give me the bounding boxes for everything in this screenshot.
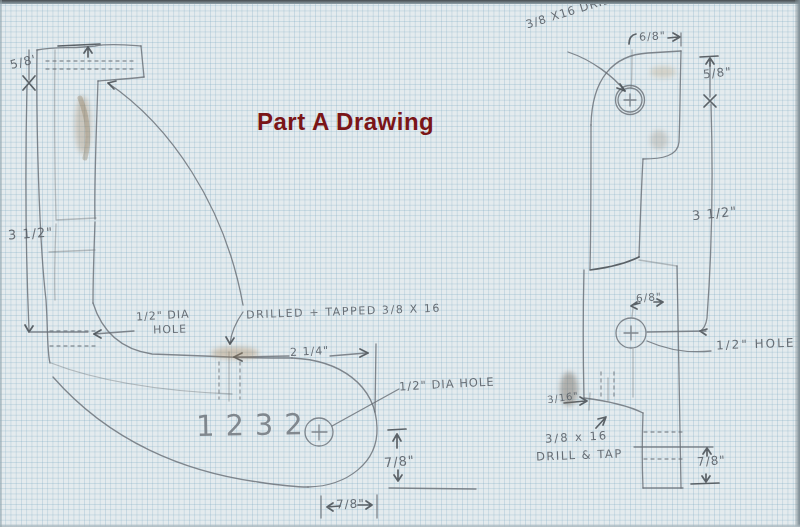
rv-dim-hole-offset-label: 6/8" [636, 290, 663, 304]
side-hole-label-line1: 1/2" DIA [136, 308, 190, 324]
dim-end-vertical-label: 7/8" [383, 453, 415, 471]
rv-dim-foot-height-label: 7/8" [697, 453, 727, 469]
drawing-title: Part A Drawing [257, 108, 434, 136]
dim-foot-length-label: 2 1/4" [290, 344, 330, 359]
dim-bar-height-label: 3 1/2" [8, 224, 54, 242]
dim-end-horizontal-label: 7/8" [336, 497, 365, 512]
rv-dim-top-height-label: 5/8" [702, 65, 732, 82]
rv-hole-label: 1/2" HOLE [716, 336, 796, 353]
pencil-sketch [0, 0, 800, 527]
scanned-drawing-page: Part A Drawing 1232 5/8' 3 1/2" 1/2" DIA… [0, 0, 800, 527]
side-hole-label-line2: HOLE [153, 322, 187, 336]
right-view-lower-hole [616, 318, 646, 348]
part-number: 1232 [196, 407, 314, 443]
rv-dim-top-offset-label: 6/8" [639, 29, 666, 43]
right-view-outline [583, 51, 683, 488]
